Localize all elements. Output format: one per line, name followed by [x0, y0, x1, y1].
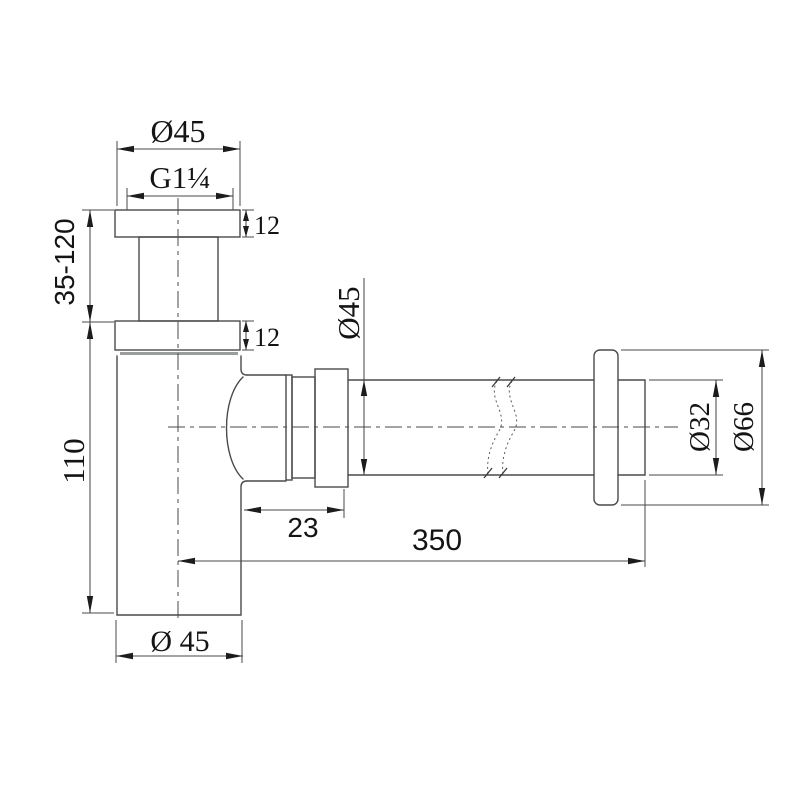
dim-body-diameter: Ø 45	[116, 620, 243, 663]
compression-nut	[315, 369, 348, 487]
label-outlet-offset: 23	[287, 512, 318, 543]
dim-upper-flange-thickness: 12	[242, 210, 280, 240]
dim-inlet-adjustable-height: 35-120	[49, 210, 114, 322]
label-lower-flange-thickness: 12	[254, 323, 280, 352]
label-top-diameter: Ø45	[150, 113, 205, 149]
dim-outlet-pipe-diameter: Ø45	[331, 278, 367, 475]
label-tailpipe-diameter: Ø32	[684, 402, 716, 452]
dim-outlet-offset: 23	[244, 489, 344, 543]
bottle-trap-drawing: Ø45 G1¼ 12 12 35-120 110	[0, 0, 800, 800]
horn-dome-curve	[227, 377, 244, 479]
label-outlet-pipe-diameter: Ø45	[331, 286, 366, 339]
label-upper-flange-thickness: 12	[254, 211, 280, 240]
dim-body-height: 110	[56, 322, 114, 613]
label-outlet-length: 350	[412, 524, 462, 557]
outlet-horn	[227, 369, 349, 487]
dim-tailpipe-diameter: Ø32	[649, 380, 723, 475]
label-body-diameter: Ø 45	[150, 625, 209, 658]
technical-drawing-canvas: Ø45 G1¼ 12 12 35-120 110	[0, 0, 800, 800]
riser-tube	[139, 237, 218, 321]
label-body-height: 110	[56, 438, 91, 483]
trap-body	[117, 356, 247, 615]
dim-outlet-length: 350	[178, 480, 645, 567]
label-thread-size: G1¼	[149, 160, 210, 195]
dim-lower-flange-thickness: 12	[242, 321, 280, 352]
label-wall-flange-diameter: Ø66	[728, 402, 760, 452]
dim-thread-size: G1¼	[127, 160, 233, 210]
label-inlet-adjustable-height: 35-120	[49, 218, 80, 305]
